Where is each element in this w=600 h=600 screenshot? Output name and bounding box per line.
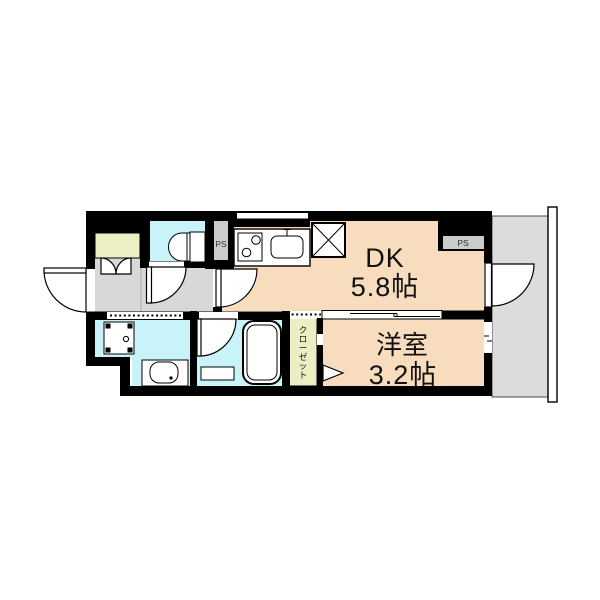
ps-label-right: PS [457, 238, 469, 248]
ps-label-top: PS [215, 239, 227, 249]
bathroom-door-leaf [197, 319, 201, 356]
dk-door-leaf [216, 269, 221, 307]
washing-machine-pan [104, 322, 134, 354]
entrance-door [44, 270, 86, 312]
refrigerator-space [312, 223, 345, 257]
floor-plan: DK 5.8帖 洋室 3.2帖 PS PS クローゼット [0, 0, 600, 600]
kitchen-window [237, 213, 308, 219]
balcony-floor [492, 216, 548, 397]
entrance-door-leaf [44, 268, 86, 273]
dk-room-label: DK [365, 243, 405, 273]
closet-label: クローゼット [299, 325, 308, 380]
shoe-cabinet [95, 233, 140, 258]
dk-room-area: 5.8帖 [351, 272, 420, 302]
sliding-door [322, 311, 442, 320]
balcony-door-leaf [485, 263, 492, 307]
vanity-sink [142, 360, 188, 386]
balcony-railing [548, 207, 557, 402]
bathtub [243, 321, 281, 384]
western-room-area: 3.2帖 [369, 360, 438, 390]
stove-burner-1 [252, 236, 261, 245]
bath-counter [201, 367, 234, 380]
floor-plan-page: DK 5.8帖 洋室 3.2帖 PS PS クローゼット [0, 0, 600, 600]
toilet-fixture [169, 232, 206, 262]
toilet-door-leaf [147, 267, 152, 303]
stove-burner-2 [242, 248, 251, 257]
kitchen-sink [271, 236, 303, 258]
western-room-label: 洋室 [376, 330, 428, 360]
western-room-window [484, 322, 492, 353]
